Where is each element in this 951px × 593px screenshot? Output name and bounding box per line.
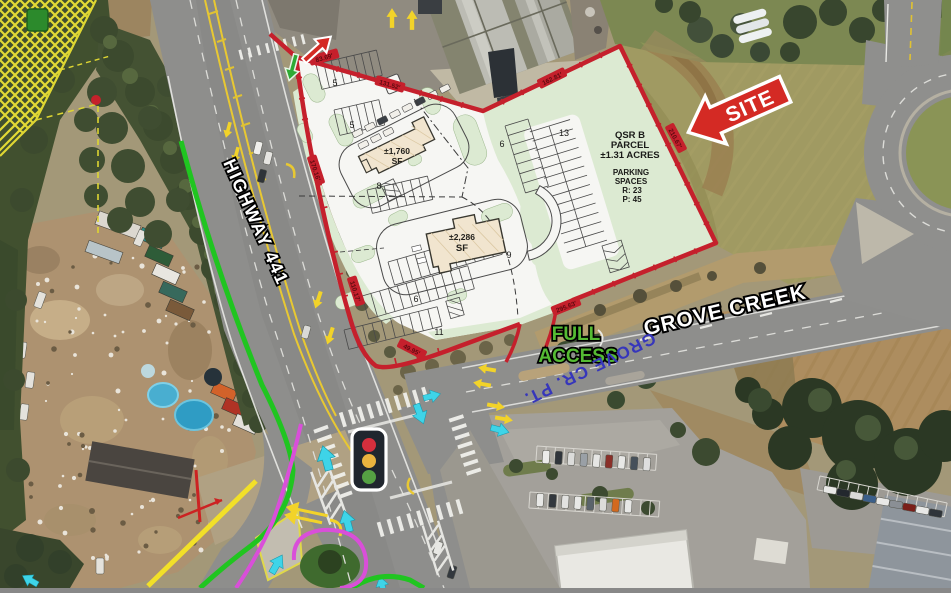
svg-text:5: 5 [349, 120, 354, 130]
svg-text:5: 5 [332, 78, 337, 88]
svg-text:6: 6 [499, 139, 504, 149]
svg-text:SPACES: SPACES [615, 177, 648, 186]
svg-text:13: 13 [559, 128, 569, 138]
svg-text:±2,286: ±2,286 [449, 232, 475, 242]
svg-text:P: 45: P: 45 [622, 195, 642, 204]
svg-text:R: 23: R: 23 [622, 186, 642, 195]
svg-text:FULL: FULL [552, 324, 601, 345]
svg-text:8: 8 [376, 181, 381, 191]
svg-text:±1,760: ±1,760 [384, 146, 410, 156]
svg-text:SF: SF [392, 156, 403, 166]
svg-text:SF: SF [456, 243, 468, 254]
svg-text:6: 6 [413, 294, 418, 304]
svg-text:±1.31 ACRES: ±1.31 ACRES [600, 150, 659, 161]
svg-text:11: 11 [434, 327, 443, 337]
svg-text:PARKING: PARKING [613, 168, 649, 177]
svg-text:9: 9 [506, 250, 511, 260]
